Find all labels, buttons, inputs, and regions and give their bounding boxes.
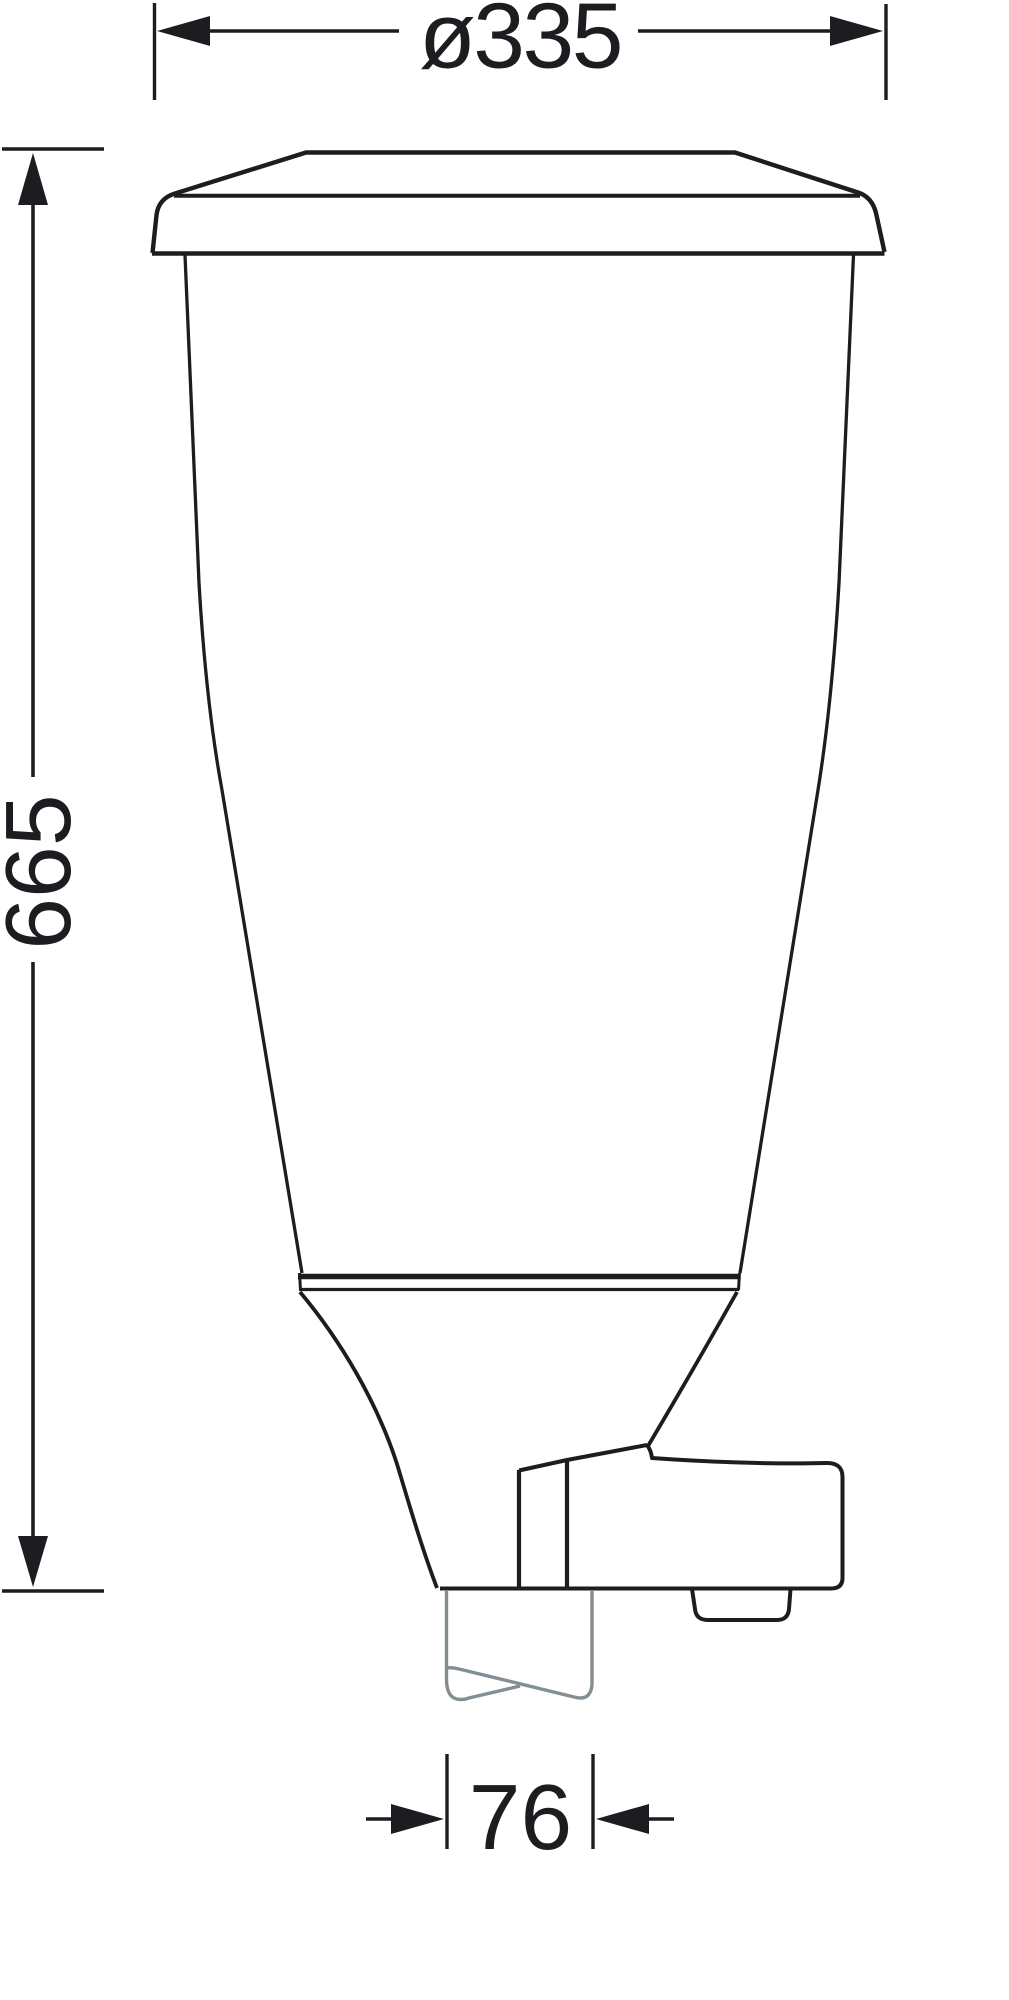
svg-text:665: 665 [0,794,90,949]
svg-text:ø335: ø335 [419,0,621,88]
svg-text:76: 76 [469,1765,572,1869]
